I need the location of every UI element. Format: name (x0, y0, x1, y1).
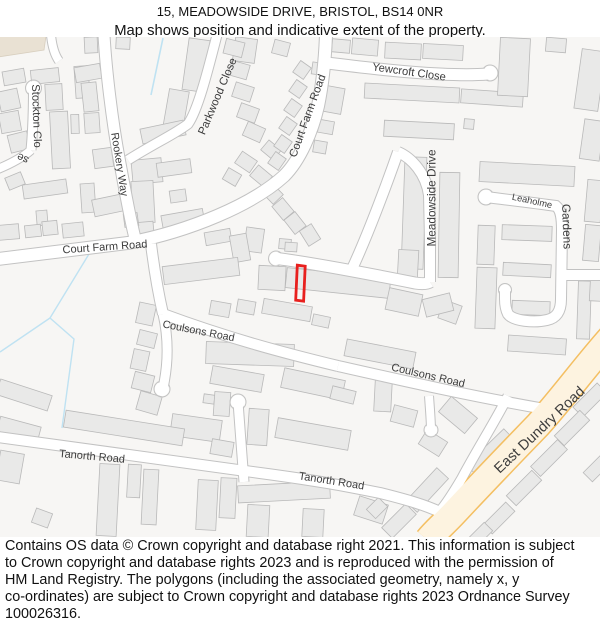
svg-text:Stockton Clo: Stockton Clo (29, 84, 43, 148)
svg-text:Gardens: Gardens (559, 204, 575, 250)
svg-text:Meadowside Drive: Meadowside Drive (425, 149, 439, 246)
